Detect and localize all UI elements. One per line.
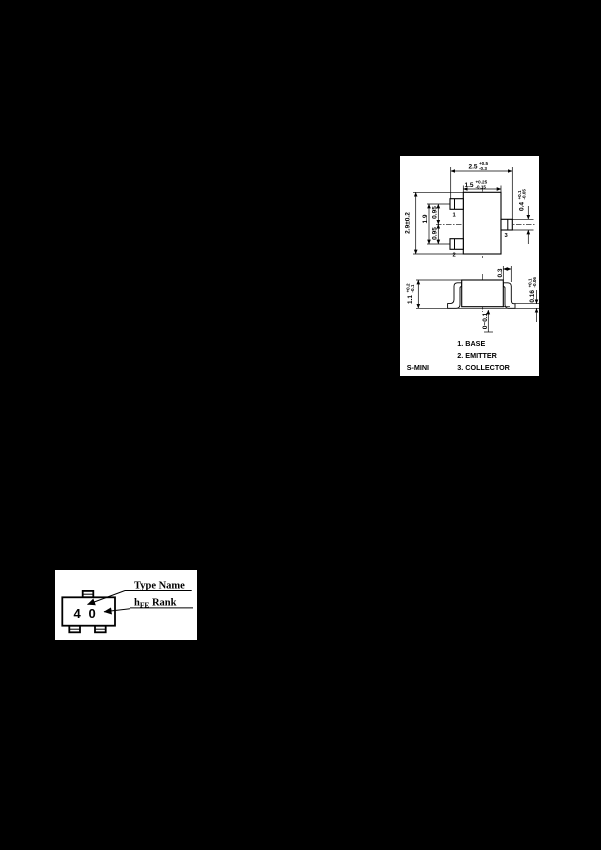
dim-body-width-minus: -0.15 (476, 184, 487, 189)
package-body-side-view (462, 280, 504, 307)
pin-legend: 1. BASE 2. EMITTER 3. COLLECTOR S-MINI (407, 339, 511, 372)
pin1-number: 1 (453, 213, 457, 219)
package-outline-drawing: 2.5 +0.5 -0.3 1.5 +0.25 -0.15 (400, 156, 539, 376)
dim-lead-thickness-value: 0.16 (529, 290, 536, 303)
package-outline-figure: 2.5 +0.5 -0.3 1.5 +0.25 -0.15 (400, 156, 539, 376)
legend-pin1: 1. BASE (457, 339, 485, 348)
side-view: 1.1 +0.2 -0.1 0.3 0.16 +0.1 -0 (405, 266, 539, 332)
dim-side-height-minus: -0.1 (410, 284, 415, 292)
top-view: 2.5 +0.5 -0.3 1.5 +0.25 -0.15 (404, 161, 536, 259)
pin3-pad (501, 219, 512, 230)
pin3-number: 3 (505, 233, 509, 239)
marking-figure: 4 0 Type Name hFERank (55, 570, 197, 640)
dim-overall-width-value: 2.5 (469, 164, 478, 171)
dim-pitch-upper: 0.95 (431, 206, 438, 219)
legend-pin3: 3. COLLECTOR (457, 363, 510, 372)
pin2-pad (450, 239, 463, 250)
dim-collector-width-minus: -0.05 (522, 189, 527, 200)
hfe-rank-mark-char: 0 (89, 606, 96, 621)
left-lead (448, 283, 462, 309)
dim-overall-width-minus: -0.3 (479, 166, 487, 171)
type-name-mark-char: 4 (74, 606, 82, 621)
datasheet-page: 2.5 +0.5 -0.3 1.5 +0.25 -0.15 (0, 0, 601, 850)
dim-lead-thickness-minus: -0.06 (532, 277, 537, 288)
type-name-label: Type Name (134, 580, 185, 591)
dim-body-width-value: 1.5 (465, 182, 474, 189)
legend-pin2: 2. EMITTER (457, 351, 497, 360)
dim-lead-length: 0.3 (497, 268, 504, 277)
dim-collector-width-value: 0.4 (519, 202, 526, 211)
pin1-pad (450, 199, 463, 210)
dim-pitch-lower: 0.95 (431, 227, 438, 240)
dim-lead-span: 1.9 (422, 214, 429, 223)
dim-body-height: 2.9±0.2 (404, 212, 411, 234)
dim-side-height-value: 1.1 (407, 295, 414, 304)
marking-diagram: 4 0 Type Name hFERank (55, 570, 197, 640)
package-body-top-view (463, 192, 501, 254)
package-name-label: S-MINI (407, 363, 429, 372)
dim-standoff: 0~0.1 (482, 312, 489, 329)
pin2-number: 2 (453, 253, 456, 259)
right-lead (503, 283, 515, 309)
